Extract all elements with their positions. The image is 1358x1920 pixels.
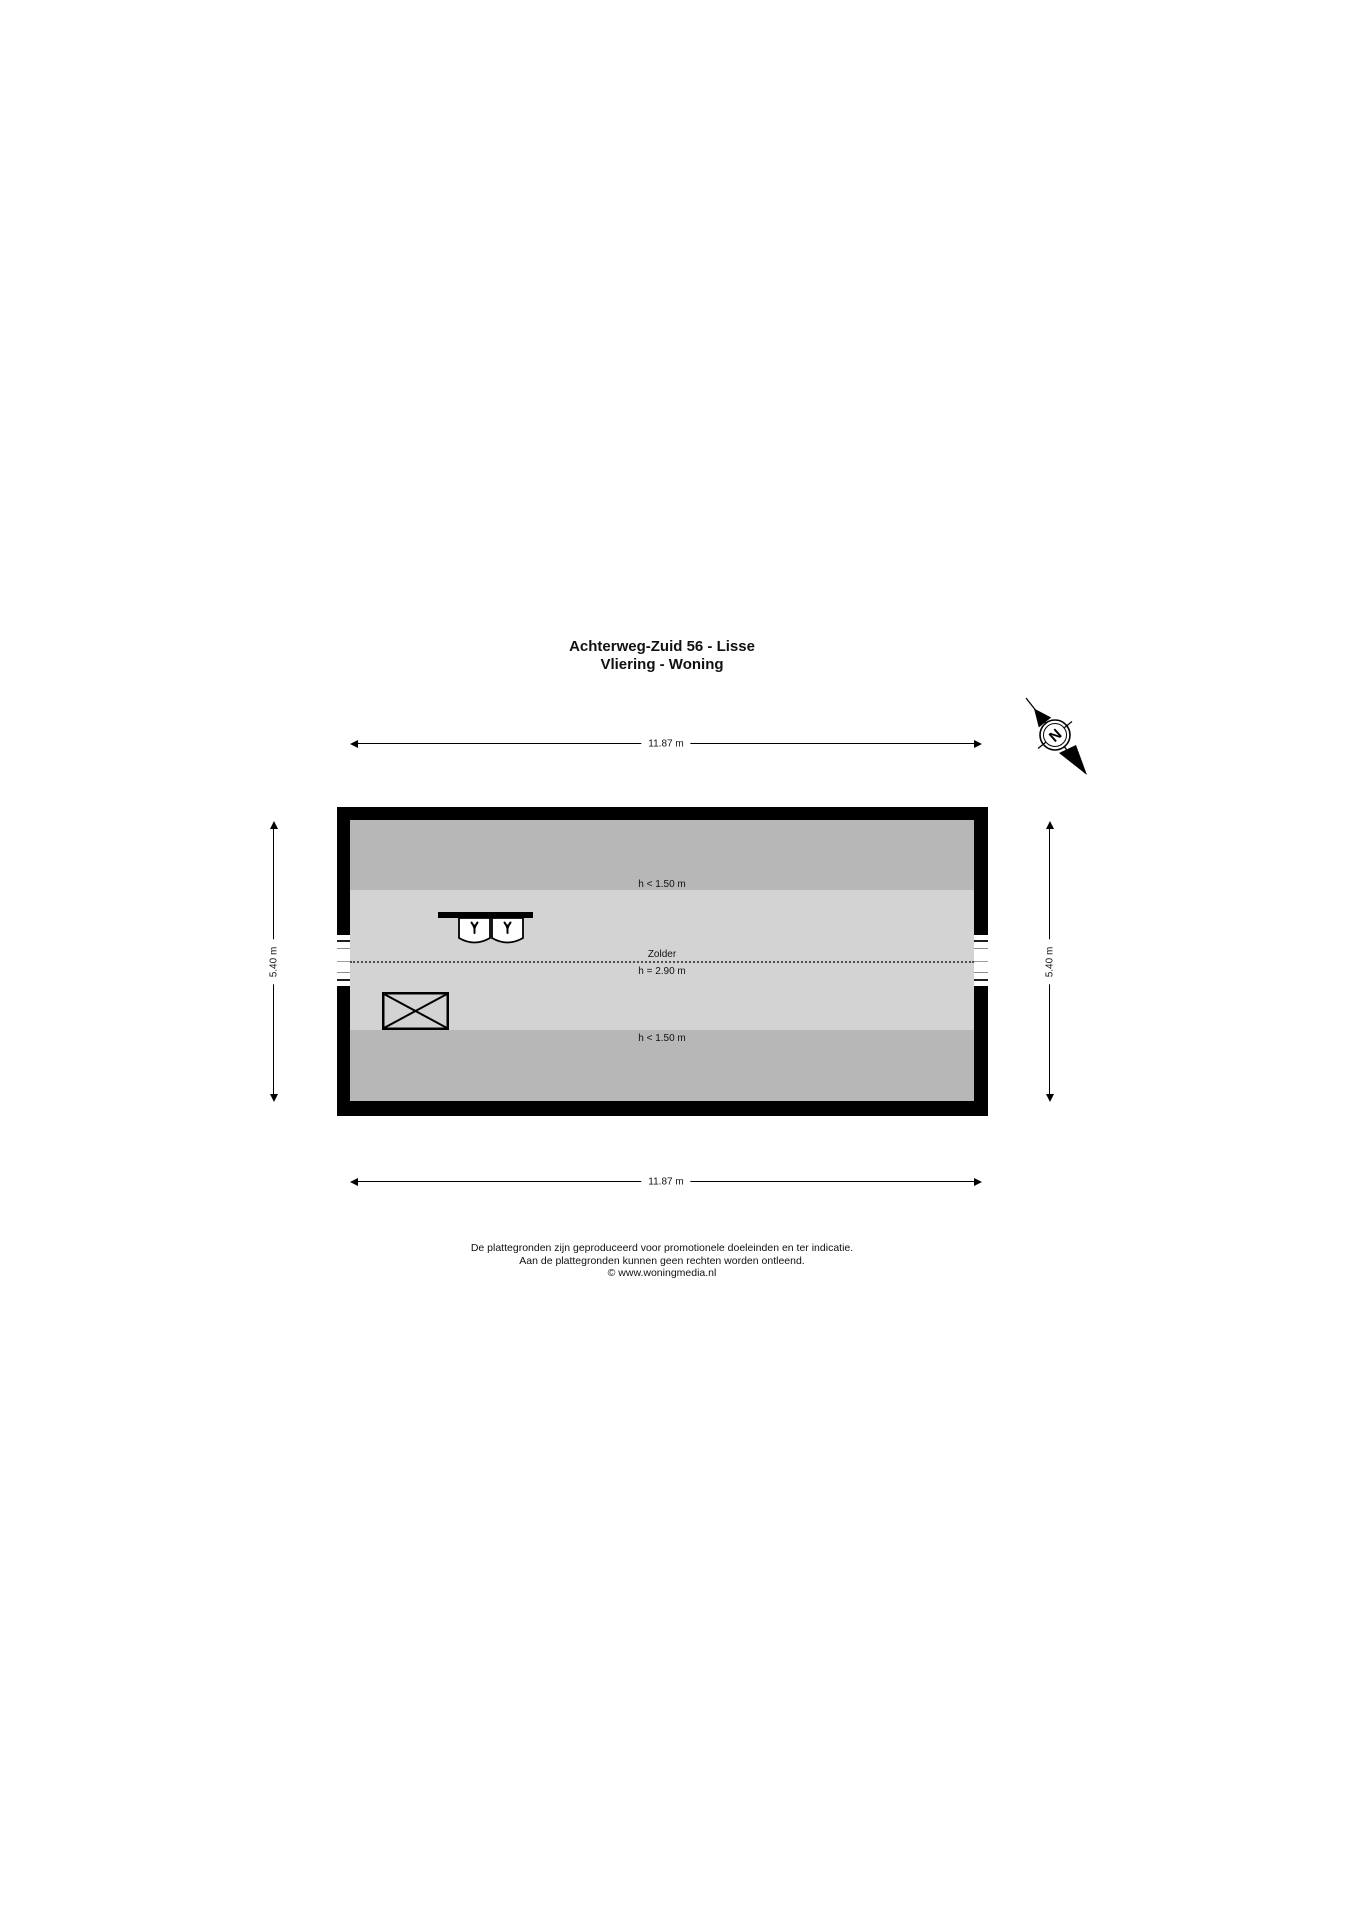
wall-window-left [337,935,350,986]
window-stripe [974,961,988,962]
dimension-height-left-label: 5.40 m [268,939,279,984]
ridge-dotted-line [350,961,974,963]
window-stripe [974,940,988,942]
dimension-width-bottom: 11.87 m [350,1175,982,1188]
dimension-width-top: 11.87 m [350,737,982,750]
low-headroom-bottom-label: h < 1.50 m [350,1033,974,1044]
window-stripe [337,972,350,973]
north-arrow-icon: N [1010,690,1100,790]
window-stripe [974,979,988,981]
wardrobe-fixture [438,912,533,948]
window-stripe [337,961,350,962]
wardrobe-rail [438,912,533,918]
compass-tail [1059,745,1087,775]
window-stripe [337,948,350,949]
dimension-height-right-label: 5.40 m [1044,939,1055,984]
stair-opening-icon [382,992,449,1030]
dimension-width-top-label: 11.87 m [641,739,690,750]
room-label: Zolder [350,949,974,960]
footer-line-1: De plattegronden zijn geproduceerd voor … [362,1242,962,1255]
floorplan-page: Achterweg-Zuid 56 - Lisse Vliering - Won… [0,0,1358,1920]
window-stripe [974,948,988,949]
low-headroom-top-label: h < 1.50 m [350,879,974,890]
window-stripe [337,940,350,942]
dimension-height-left: 5.40 m [267,821,280,1102]
window-stripe [337,979,350,981]
dimension-width-bottom-label: 11.87 m [641,1177,690,1188]
footer-line-2: Aan de plattegronden kunnen geen rechten… [362,1255,962,1268]
page-title: Achterweg-Zuid 56 - Lisse Vliering - Won… [412,638,912,674]
floorplan-interior: h < 1.50 m Zolder h = 2.90 m h < 1.50 m [350,820,974,1101]
window-stripe [974,972,988,973]
footer-copyright: © www.woningmedia.nl [362,1267,962,1280]
dimension-height-right: 5.40 m [1043,821,1056,1102]
wall-window-right [974,935,988,986]
floorplan: h < 1.50 m Zolder h = 2.90 m h < 1.50 m [337,807,988,1116]
footer-disclaimer: De plattegronden zijn geproduceerd voor … [362,1242,962,1280]
ridge-height-label: h = 2.90 m [350,966,974,977]
title-address: Achterweg-Zuid 56 - Lisse [412,638,912,656]
title-floor: Vliering - Woning [412,656,912,674]
